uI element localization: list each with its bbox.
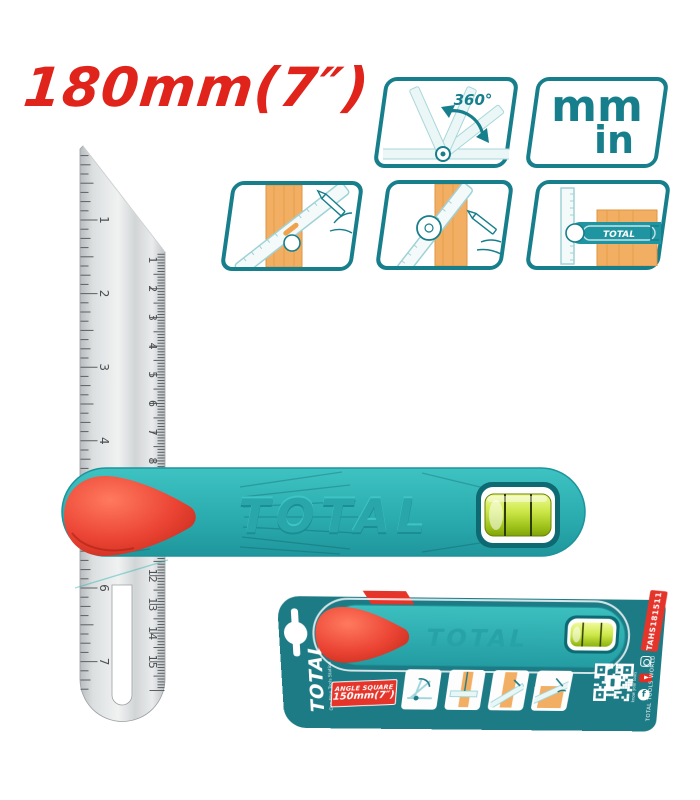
- card-size-badge: ANGLE SQUARE 150mm(7″): [330, 679, 397, 707]
- svg-text:4: 4: [146, 343, 159, 350]
- svg-text:4: 4: [97, 437, 111, 445]
- card-spirit-level: [564, 615, 621, 653]
- svg-text:2: 2: [97, 290, 111, 298]
- package-card: TOTAL One-Stop Tools Station TOTAL: [277, 596, 667, 732]
- svg-text:6: 6: [97, 584, 111, 592]
- svg-text:3: 3: [146, 314, 159, 321]
- handle: TOTAL TOTAL TOTAL: [62, 468, 585, 556]
- card-icon-mark45: [487, 670, 530, 710]
- svg-text:15: 15: [146, 655, 159, 669]
- card-icon-square: [444, 670, 486, 710]
- svg-text:7: 7: [97, 658, 111, 666]
- card-tool-emboss: TOTAL: [427, 624, 529, 653]
- svg-text:5: 5: [146, 371, 159, 378]
- svg-text:1: 1: [97, 216, 111, 224]
- svg-text:7: 7: [146, 429, 159, 436]
- qr-code: [593, 663, 635, 702]
- svg-text:8: 8: [146, 457, 159, 464]
- svg-text:2: 2: [146, 285, 159, 292]
- size-title: 180mm(7″): [21, 56, 373, 119]
- vial-bubble: [489, 500, 503, 530]
- product-image: 180mm(7″) 360° mm i: [0, 0, 700, 800]
- spirit-level: [476, 482, 560, 548]
- brand-emboss: TOTAL: [238, 489, 431, 543]
- rotation-label: 360°: [454, 91, 493, 109]
- svg-text:13: 13: [146, 597, 159, 611]
- svg-text:12: 12: [146, 569, 159, 583]
- svg-text:14: 14: [146, 626, 159, 640]
- svg-text:6: 6: [146, 400, 159, 407]
- svg-text:3: 3: [97, 363, 111, 371]
- badge-size: 150mm(7″): [332, 691, 396, 703]
- card-icon-rotation: [401, 669, 442, 709]
- svg-text:1: 1: [146, 257, 159, 264]
